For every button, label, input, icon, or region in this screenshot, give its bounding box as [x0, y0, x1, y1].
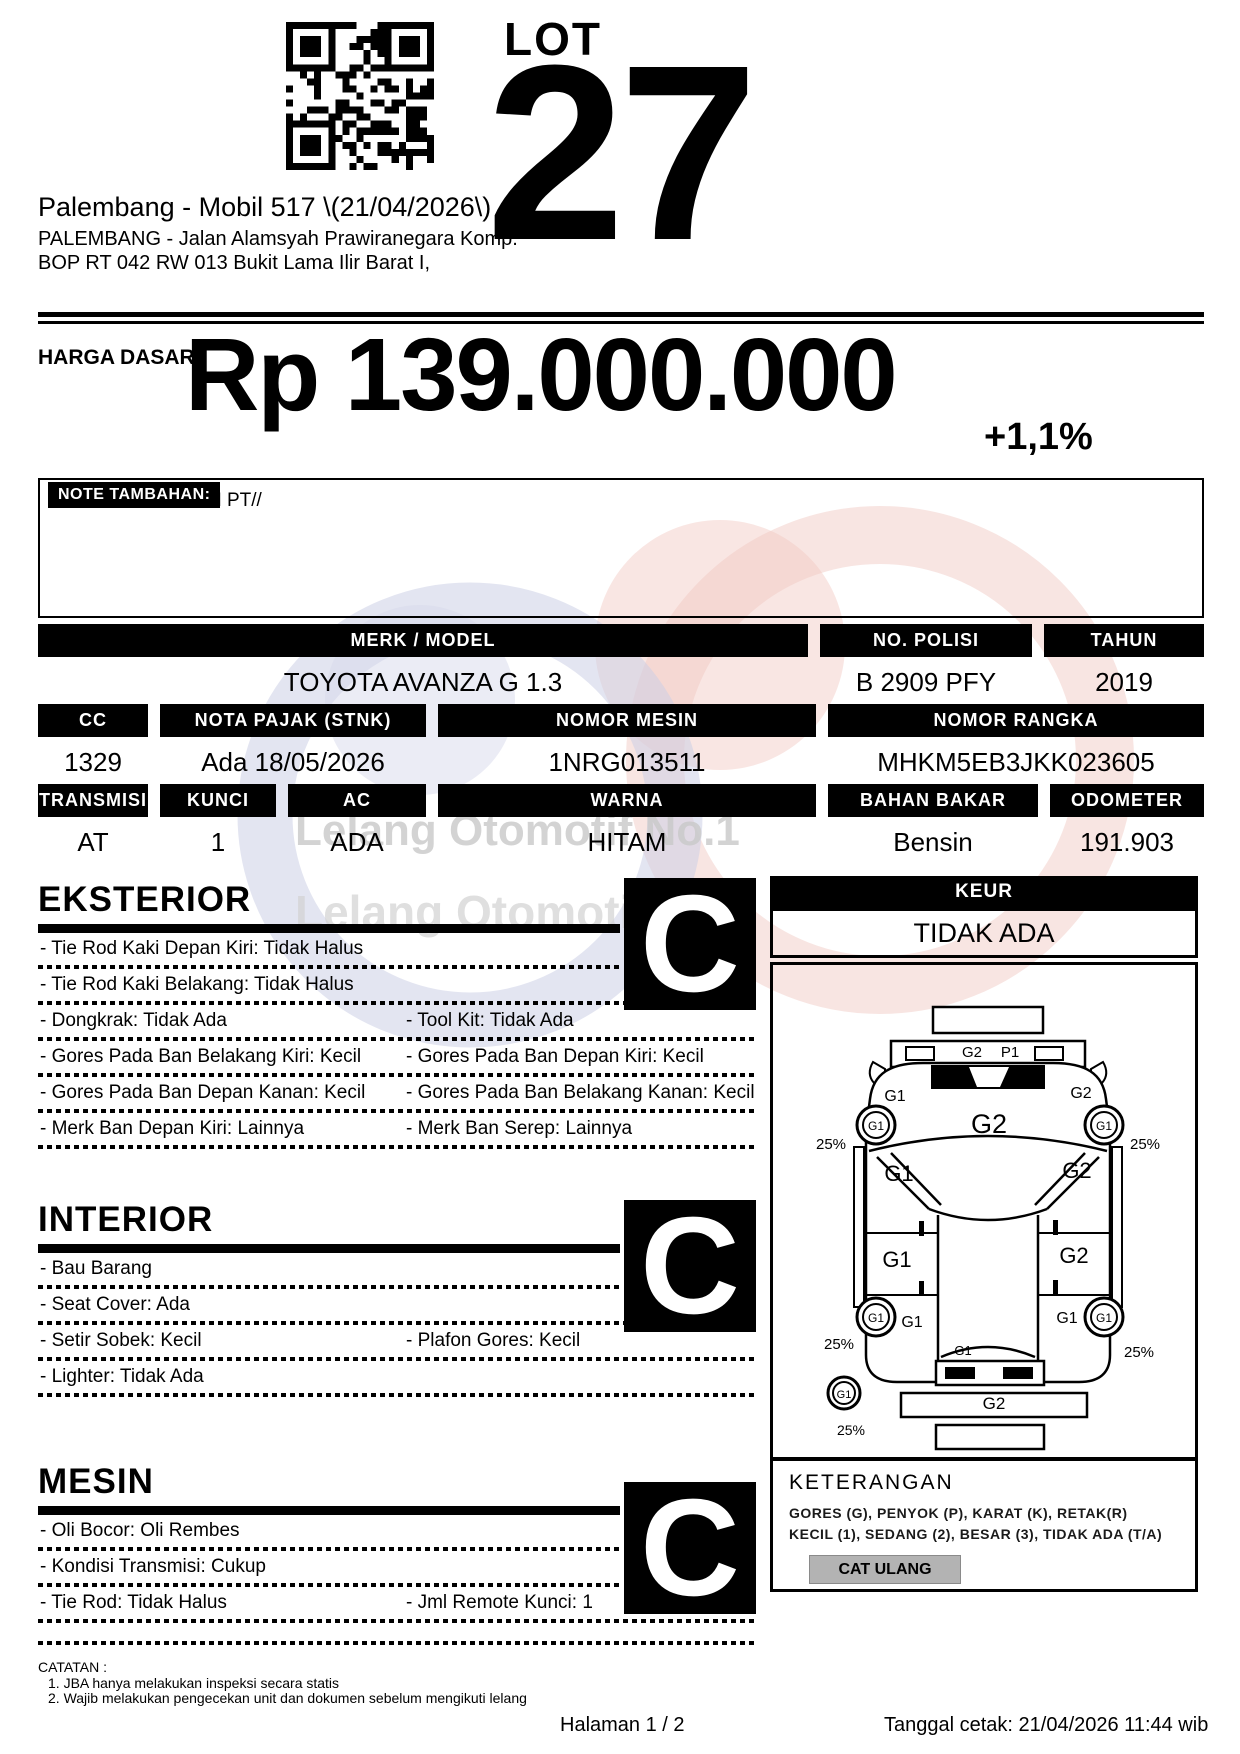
header-odometer: ODOMETER — [1050, 784, 1204, 817]
car-damage-diagram: G2P1G2G1G2G1G125%25%G1G2G1G2G1G1G1G125%2… — [773, 965, 1195, 1457]
diagram-label: G2 — [1070, 1085, 1091, 1102]
list-item: - Lighter: Tidak Ada — [38, 1365, 756, 1397]
item-right: - Gores Pada Ban Belakang Kanan: Kecil — [406, 1082, 755, 1103]
header-nota-pajak: NOTA PAJAK (STNK) — [160, 704, 426, 737]
diagram-label: 25% — [1124, 1344, 1154, 1361]
diagram-label: G1 — [837, 1389, 852, 1401]
item-left: - Merk Ban Depan Kiri: Lainnya — [40, 1118, 304, 1139]
diagram-label: G1 — [868, 1311, 884, 1325]
grade-badge-mesin: C — [624, 1482, 756, 1614]
item-right: - Merk Ban Serep: Lainnya — [406, 1118, 632, 1139]
value-cc: 1329 — [38, 740, 148, 784]
value-nota-pajak: Ada 18/05/2026 — [160, 740, 426, 784]
print-date: Tanggal cetak: 21/04/2026 11:44 wib — [884, 1714, 1208, 1737]
note-label: NOTE TAMBAHAN: — [48, 482, 220, 508]
diagram-label: G1 — [954, 1343, 971, 1358]
keterangan-title: KETERANGAN — [789, 1471, 1179, 1495]
header-transmisi: TRANSMISI — [38, 784, 148, 817]
diagram-label: 25% — [824, 1336, 854, 1353]
auction-address-line1: PALEMBANG - Jalan Alamsyah Prawiranegara… — [38, 228, 518, 251]
item-left: - Oli Bocor: Oli Rembes — [40, 1520, 240, 1541]
item-left: - Tie Rod Kaki Belakang: Tidak Halus — [40, 974, 354, 995]
item-right: - Tool Kit: Tidak Ada — [406, 1010, 574, 1031]
base-price-value: Rp 139.000.000 — [185, 318, 896, 431]
keur-value: TIDAK ADA — [770, 908, 1198, 958]
diagram-label: G2 — [983, 1394, 1006, 1413]
diagram-label: 25% — [1130, 1136, 1160, 1153]
header-nomor-rangka: NOMOR RANGKA — [828, 704, 1204, 737]
price-change-percent: +1,1% — [984, 416, 1093, 459]
list-item: - Merk Ban Depan Kiri: Lainnya- Merk Ban… — [38, 1117, 756, 1149]
value-warna: HITAM — [438, 820, 816, 864]
diagram-label: 25% — [837, 1422, 865, 1438]
list-item: - Bau Barang — [38, 1257, 622, 1289]
catatan-item: 2. Wajib melakukan pengecekan unit dan d… — [48, 1691, 527, 1707]
item-left: - Kondisi Transmisi: Cukup — [40, 1556, 266, 1577]
value-kunci: 1 — [160, 820, 276, 864]
value-odometer: 191.903 — [1050, 820, 1204, 864]
header-bahan-bakar: BAHAN BAKAR — [828, 784, 1038, 817]
catatan-notes: CATATAN : 1. JBA hanya melakukan inspeks… — [38, 1660, 527, 1707]
header-warna: WARNA — [438, 784, 816, 817]
catatan-item: 1. JBA hanya melakukan inspeksi secara s… — [48, 1676, 527, 1692]
diagram-label: G2 — [971, 1109, 1007, 1139]
diagram-label: G2 — [1059, 1243, 1088, 1268]
list-item: - Oli Bocor: Oli Rembes — [38, 1519, 622, 1551]
diagram-label: G1 — [882, 1247, 911, 1272]
item-left: - Bau Barang — [40, 1258, 152, 1279]
auction-sheet-page: Lelang Otomotif No.1 Lelang Otomotif LOT… — [0, 0, 1240, 1754]
value-ac: ADA — [288, 820, 426, 864]
value-nomor-rangka: MHKM5EB3JKK023605 — [828, 740, 1204, 784]
header-cc: CC — [38, 704, 148, 737]
diagram-label: G2 — [1062, 1158, 1091, 1183]
diagram-label: G1 — [884, 1161, 913, 1186]
diagram-label: G1 — [1096, 1119, 1112, 1133]
section-underline — [38, 1506, 620, 1515]
diagram-label: G1 — [884, 1088, 905, 1105]
list-item: - Gores Pada Ban Belakang Kiri: Kecil- G… — [38, 1045, 756, 1077]
auction-address-line2: BOP RT 042 RW 013 Bukit Lama Ilir Barat … — [38, 252, 430, 275]
value-bahan-bakar: Bensin — [828, 820, 1038, 864]
separator-dashed — [38, 1641, 756, 1645]
diagram-label: 25% — [816, 1136, 846, 1153]
item-left: - Gores Pada Ban Belakang Kiri: Kecil — [40, 1046, 361, 1067]
diagram-label: G1 — [1096, 1311, 1112, 1325]
item-left: - Lighter: Tidak Ada — [40, 1366, 204, 1387]
damage-diagram-panel: G2P1G2G1G2G1G125%25%G1G2G1G2G1G1G1G125%2… — [770, 962, 1198, 1592]
qr-code — [286, 22, 434, 170]
item-right: - Plafon Gores: Kecil — [406, 1330, 580, 1351]
item-left: - Seat Cover: Ada — [40, 1294, 190, 1315]
value-tahun: 2019 — [1044, 660, 1204, 704]
item-left: - Tie Rod: Tidak Halus — [40, 1592, 227, 1613]
diagram-label: G2 — [962, 1044, 982, 1061]
diagram-label: G1 — [868, 1119, 884, 1133]
note-box: NOTE TAMBAHAN: A.N PT// — [38, 478, 1204, 618]
catatan-title: CATATAN : — [38, 1660, 527, 1676]
header-nomor-mesin: NOMOR MESIN — [438, 704, 816, 737]
diagram-label: G1 — [901, 1314, 922, 1331]
car-top-view: G2P1G2G1G2G1G125%25%G1G2G1G2G1G1G1G125%2… — [773, 965, 1195, 1457]
value-merk-model: TOYOTA AVANZA G 1.3 — [38, 660, 808, 704]
keterangan-legend: KETERANGAN GORES (G), PENYOK (P), KARAT … — [773, 1457, 1195, 1584]
diagram-label: P1 — [1001, 1044, 1019, 1061]
item-left: - Setir Sobek: Kecil — [40, 1330, 202, 1351]
item-right: - Gores Pada Ban Depan Kiri: Kecil — [406, 1046, 704, 1067]
keur-header: KEUR — [770, 876, 1198, 908]
value-transmisi: AT — [38, 820, 148, 864]
item-left: - Dongkrak: Tidak Ada — [40, 1010, 227, 1031]
page-indicator: Halaman 1 / 2 — [560, 1714, 685, 1737]
header-kunci: KUNCI — [160, 784, 276, 817]
item-right: - Jml Remote Kunci: 1 — [406, 1592, 593, 1613]
cat-ulang-badge: CAT ULANG — [809, 1555, 961, 1584]
grade-badge-eksterior: C — [624, 878, 756, 1010]
header-no-polisi: NO. POLISI — [820, 624, 1032, 657]
base-price-label: HARGA DASAR : — [38, 346, 208, 370]
grade-badge-interior: C — [624, 1200, 756, 1332]
item-left: - Gores Pada Ban Depan Kanan: Kecil — [40, 1082, 365, 1103]
list-item: - Kondisi Transmisi: Cukup — [38, 1555, 622, 1587]
header-tahun: TAHUN — [1044, 624, 1204, 657]
keterangan-line1: GORES (G), PENYOK (P), KARAT (K), RETAK(… — [789, 1503, 1179, 1524]
section-underline — [38, 924, 620, 933]
lot-number: 27 — [486, 28, 752, 278]
value-no-polisi: B 2909 PFY — [820, 660, 1032, 704]
header-merk-model: MERK / MODEL — [38, 624, 808, 657]
list-item: - Gores Pada Ban Depan Kanan: Kecil- Gor… — [38, 1081, 756, 1113]
list-item: - Tie Rod Kaki Depan Kiri: Tidak Halus — [38, 937, 622, 969]
header-ac: AC — [288, 784, 426, 817]
auction-title: Palembang - Mobil 517 \(21/04/2026\) — [38, 192, 491, 223]
item-left: - Tie Rod Kaki Depan Kiri: Tidak Halus — [40, 938, 363, 959]
value-nomor-mesin: 1NRG013511 — [438, 740, 816, 784]
section-underline — [38, 1244, 620, 1253]
keterangan-line2: KECIL (1), SEDANG (2), BESAR (3), TIDAK … — [789, 1524, 1179, 1545]
diagram-label: G1 — [1056, 1310, 1077, 1327]
